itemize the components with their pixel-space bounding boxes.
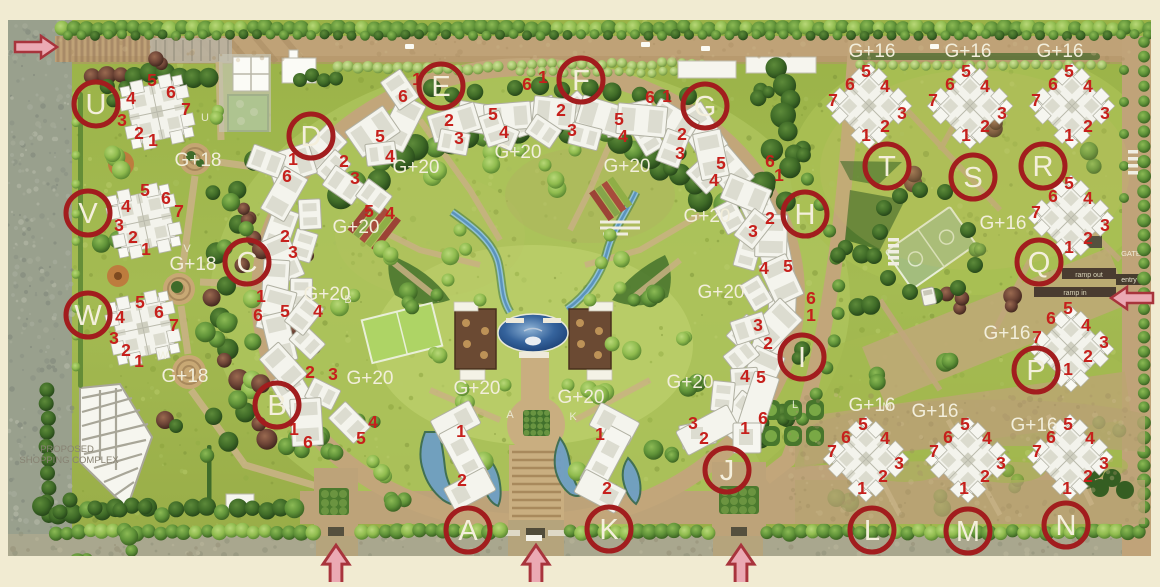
svg-text:6: 6 — [841, 427, 851, 447]
svg-text:2: 2 — [763, 333, 773, 353]
svg-text:4: 4 — [740, 366, 750, 386]
svg-text:G+20: G+20 — [697, 282, 744, 303]
svg-text:4: 4 — [980, 76, 990, 96]
svg-text:I: I — [798, 342, 806, 374]
svg-text:D: D — [301, 121, 322, 153]
svg-text:2: 2 — [765, 208, 775, 228]
svg-text:2: 2 — [556, 100, 566, 120]
svg-text:2: 2 — [878, 466, 888, 486]
svg-text:L: L — [792, 399, 798, 411]
svg-text:5: 5 — [1064, 61, 1074, 81]
svg-text:6: 6 — [758, 408, 768, 428]
svg-text:5: 5 — [356, 428, 366, 448]
svg-text:3: 3 — [997, 103, 1007, 123]
svg-text:G+20: G+20 — [332, 217, 379, 238]
svg-text:3: 3 — [1099, 453, 1109, 473]
svg-text:6: 6 — [845, 74, 855, 94]
svg-text:2: 2 — [980, 116, 990, 136]
svg-text:1: 1 — [1064, 125, 1074, 145]
svg-text:W: W — [158, 350, 169, 362]
svg-text:6: 6 — [303, 432, 313, 452]
svg-text:1: 1 — [740, 418, 750, 438]
svg-text:7: 7 — [1031, 202, 1041, 222]
svg-text:4: 4 — [880, 76, 890, 96]
svg-text:4: 4 — [1085, 428, 1095, 448]
svg-text:7: 7 — [169, 315, 179, 335]
svg-text:P: P — [1026, 355, 1045, 387]
svg-text:2: 2 — [677, 124, 687, 144]
svg-text:G+20: G+20 — [346, 368, 393, 389]
svg-text:G+16: G+16 — [1036, 41, 1083, 62]
svg-text:7: 7 — [1032, 327, 1042, 347]
svg-text:U: U — [86, 89, 107, 121]
svg-text:N: N — [1056, 510, 1077, 542]
svg-text:3: 3 — [567, 120, 577, 140]
svg-text:4: 4 — [618, 126, 628, 146]
svg-text:ramp out: ramp out — [1075, 272, 1103, 279]
svg-text:4: 4 — [368, 412, 378, 432]
svg-text:J: J — [720, 455, 735, 487]
svg-text:4: 4 — [385, 203, 395, 223]
svg-text:4: 4 — [1083, 76, 1093, 96]
svg-text:7: 7 — [929, 441, 939, 461]
svg-text:3: 3 — [328, 364, 338, 384]
svg-text:S: S — [963, 162, 982, 194]
svg-text:5: 5 — [858, 414, 868, 434]
svg-text:6: 6 — [161, 188, 171, 208]
svg-text:T: T — [878, 151, 896, 183]
svg-text:G: G — [694, 91, 717, 123]
svg-text:5: 5 — [488, 104, 498, 124]
svg-text:5: 5 — [375, 126, 385, 146]
svg-text:2: 2 — [699, 428, 709, 448]
svg-text:4: 4 — [115, 307, 125, 327]
svg-text:1: 1 — [1062, 478, 1072, 498]
svg-text:1: 1 — [861, 125, 871, 145]
svg-text:1: 1 — [148, 130, 158, 150]
svg-text:3: 3 — [748, 221, 758, 241]
svg-text:PROPOSED: PROPOSED — [40, 444, 94, 455]
svg-text:G+16: G+16 — [911, 401, 958, 422]
svg-text:7: 7 — [181, 99, 191, 119]
svg-text:5: 5 — [135, 292, 145, 312]
svg-text:1: 1 — [141, 239, 151, 259]
svg-text:4: 4 — [499, 122, 509, 142]
svg-text:6: 6 — [398, 86, 408, 106]
svg-text:6: 6 — [522, 74, 532, 94]
svg-text:F: F — [572, 65, 590, 97]
svg-text:4: 4 — [1083, 188, 1093, 208]
svg-text:3: 3 — [753, 315, 763, 335]
svg-text:6: 6 — [166, 82, 176, 102]
svg-text:4: 4 — [1081, 315, 1091, 335]
svg-text:2: 2 — [1083, 466, 1093, 486]
svg-text:1: 1 — [1064, 237, 1074, 257]
svg-text:K: K — [599, 514, 619, 546]
svg-text:ramp in: ramp in — [1063, 290, 1086, 297]
svg-text:1: 1 — [857, 478, 867, 498]
svg-text:4: 4 — [880, 428, 890, 448]
svg-text:U: U — [201, 112, 209, 124]
svg-text:W: W — [74, 300, 102, 332]
svg-text:1: 1 — [959, 478, 969, 498]
svg-text:4: 4 — [759, 258, 769, 278]
svg-text:1: 1 — [961, 125, 971, 145]
svg-text:2: 2 — [305, 362, 315, 382]
svg-text:A: A — [506, 409, 514, 421]
svg-text:6: 6 — [154, 302, 164, 322]
svg-text:5: 5 — [756, 367, 766, 387]
svg-text:G+20: G+20 — [603, 156, 650, 177]
svg-text:G+16: G+16 — [979, 213, 1026, 234]
svg-text:7: 7 — [1032, 441, 1042, 461]
svg-text:2: 2 — [1083, 116, 1093, 136]
svg-text:2: 2 — [602, 478, 612, 498]
svg-text:5: 5 — [783, 256, 793, 276]
svg-text:2: 2 — [457, 470, 467, 490]
svg-text:G+20: G+20 — [453, 378, 500, 399]
svg-text:3: 3 — [454, 128, 464, 148]
svg-text:1: 1 — [538, 67, 548, 87]
svg-text:B: B — [267, 390, 286, 422]
svg-text:3: 3 — [114, 215, 124, 235]
svg-text:5: 5 — [147, 70, 157, 90]
svg-text:4: 4 — [709, 170, 719, 190]
svg-text:G+20: G+20 — [494, 142, 541, 163]
svg-text:H: H — [795, 199, 816, 231]
svg-text:2: 2 — [128, 227, 138, 247]
svg-text:1: 1 — [456, 421, 466, 441]
svg-text:G+16: G+16 — [983, 323, 1030, 344]
svg-text:6: 6 — [1046, 308, 1056, 328]
svg-text:K: K — [569, 411, 577, 423]
svg-text:7: 7 — [174, 201, 184, 221]
svg-text:5: 5 — [960, 414, 970, 434]
svg-text:C: C — [237, 247, 258, 279]
svg-text:3: 3 — [688, 413, 698, 433]
svg-text:6: 6 — [945, 74, 955, 94]
svg-text:2: 2 — [880, 116, 890, 136]
svg-text:5: 5 — [140, 180, 150, 200]
svg-text:G+16: G+16 — [944, 41, 991, 62]
svg-text:G+18: G+18 — [161, 366, 208, 387]
svg-text:G+16: G+16 — [848, 395, 895, 416]
svg-text:SHOPPING COMPLEX: SHOPPING COMPLEX — [19, 455, 119, 466]
svg-text:G+16: G+16 — [1010, 415, 1057, 436]
svg-text:6: 6 — [645, 87, 655, 107]
svg-text:7: 7 — [828, 90, 838, 110]
svg-text:6: 6 — [282, 166, 292, 186]
svg-text:5: 5 — [1063, 414, 1073, 434]
svg-text:1: 1 — [256, 286, 266, 306]
svg-text:5: 5 — [861, 61, 871, 81]
svg-text:G+20: G+20 — [303, 284, 350, 305]
svg-text:3: 3 — [1100, 103, 1110, 123]
svg-text:Q: Q — [1028, 247, 1051, 279]
svg-text:3: 3 — [350, 168, 360, 188]
svg-text:3: 3 — [996, 453, 1006, 473]
svg-text:2: 2 — [121, 340, 131, 360]
svg-text:6: 6 — [1048, 74, 1058, 94]
svg-text:V: V — [78, 198, 98, 230]
svg-text:3: 3 — [1100, 215, 1110, 235]
svg-text:3: 3 — [894, 453, 904, 473]
svg-text:3: 3 — [675, 143, 685, 163]
svg-text:2: 2 — [134, 123, 144, 143]
svg-text:1: 1 — [662, 86, 672, 106]
svg-text:entry: entry — [1121, 277, 1137, 284]
svg-text:3: 3 — [288, 242, 298, 262]
svg-text:1: 1 — [134, 351, 144, 371]
svg-text:7: 7 — [1031, 90, 1041, 110]
svg-text:G+20: G+20 — [683, 206, 730, 227]
svg-text:4: 4 — [126, 88, 136, 108]
svg-text:1: 1 — [806, 305, 816, 325]
svg-text:4: 4 — [121, 196, 131, 216]
svg-text:7: 7 — [928, 90, 938, 110]
svg-text:3: 3 — [109, 328, 119, 348]
svg-text:1: 1 — [595, 424, 605, 444]
svg-text:L: L — [864, 515, 880, 547]
svg-text:7: 7 — [827, 441, 837, 461]
svg-text:4: 4 — [982, 428, 992, 448]
svg-text:2: 2 — [980, 466, 990, 486]
svg-text:1: 1 — [1063, 359, 1073, 379]
svg-text:G+18: G+18 — [174, 150, 221, 171]
svg-text:1: 1 — [774, 165, 784, 185]
svg-text:2: 2 — [1083, 346, 1093, 366]
svg-text:A: A — [458, 515, 478, 547]
svg-text:2: 2 — [1083, 228, 1093, 248]
svg-text:5: 5 — [1063, 298, 1073, 318]
svg-text:G+18: G+18 — [169, 254, 216, 275]
svg-text:2: 2 — [339, 151, 349, 171]
svg-text:3: 3 — [897, 103, 907, 123]
svg-text:G+20: G+20 — [666, 372, 713, 393]
svg-text:G+20: G+20 — [392, 157, 439, 178]
svg-text:5: 5 — [1064, 173, 1074, 193]
svg-text:2: 2 — [444, 110, 454, 130]
svg-text:E: E — [431, 71, 450, 103]
svg-text:G+20: G+20 — [557, 387, 604, 408]
svg-text:M: M — [956, 516, 980, 548]
svg-text:5: 5 — [280, 301, 290, 321]
svg-text:6: 6 — [253, 305, 263, 325]
svg-text:R: R — [1033, 151, 1054, 183]
svg-text:G+16: G+16 — [848, 41, 895, 62]
svg-text:6: 6 — [943, 427, 953, 447]
svg-text:5: 5 — [961, 61, 971, 81]
svg-text:3: 3 — [1099, 332, 1109, 352]
